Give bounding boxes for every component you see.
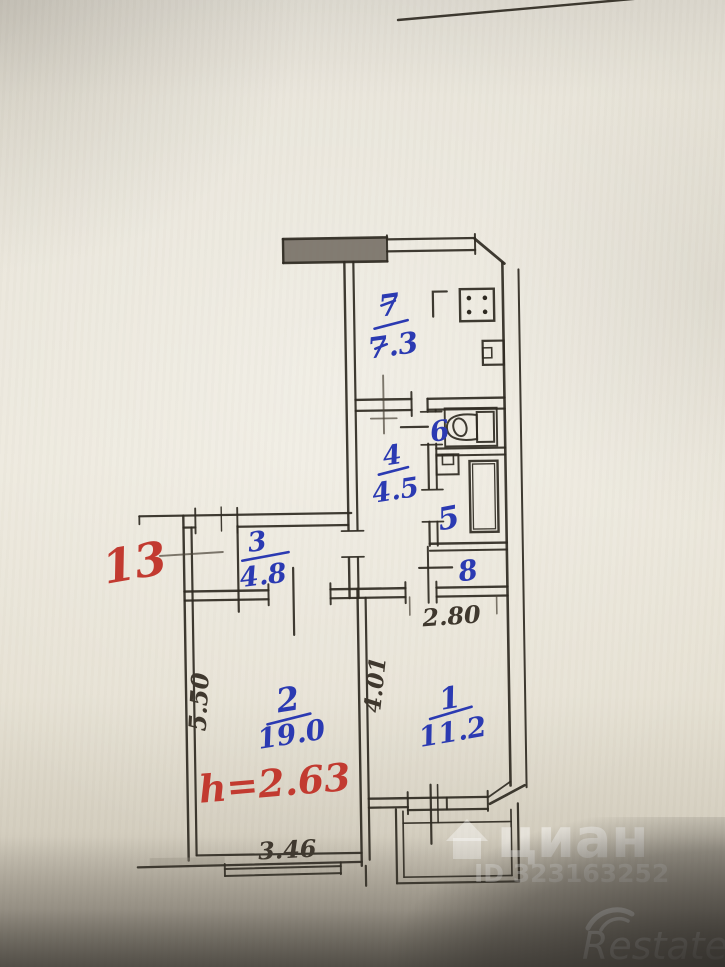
kitchen-walls (283, 233, 527, 791)
kitchen-room-label: 7 7.3 (360, 285, 420, 365)
corridor-area: 4.5 (370, 472, 421, 510)
hallway-room-label: 3 4.8 (234, 523, 293, 594)
closet-label-leader (419, 567, 452, 568)
corridor-number: 4 (380, 439, 403, 473)
bedroom-width-dimension: 2.80 (410, 596, 498, 633)
cian-id-label: ID 323163252 (474, 859, 669, 888)
dimension-bedroom-depth: 4.01 (359, 655, 392, 714)
chamfered-corner (475, 239, 504, 264)
chamfered-corner (490, 785, 525, 804)
toilet-icon (445, 408, 498, 447)
restate-logo-text: Restate (582, 924, 725, 967)
paper-edge-line (398, 0, 655, 20)
corridor-hall-door-jambs (342, 531, 364, 557)
photo-of-floor-plan: 7 7.3 (0, 0, 725, 967)
corridor-room-label: 4 4.5 (365, 437, 422, 509)
hallway-area: 4.8 (238, 558, 289, 594)
living-walls (133, 589, 370, 890)
stove-icon (460, 289, 494, 322)
cian-house-icon (446, 819, 488, 859)
bathtub-icon (469, 461, 498, 532)
hallway-number: 3 (246, 526, 268, 559)
floor-plan-svg: 7 7.3 (0, 0, 725, 967)
kitchen-sink-icon (483, 341, 504, 365)
dimension-living-depth: 5.50 (183, 672, 215, 732)
ceiling-height-label: h=2.63 (197, 754, 352, 812)
dimension-bedroom-width: 2.80 (420, 599, 482, 632)
apartment-number-label: 13 (98, 530, 170, 594)
restate-logo: Restate (582, 910, 725, 967)
plan: 7 7.3 (94, 233, 528, 890)
washbasin-icon (436, 454, 458, 474)
bathroom-walls (422, 489, 507, 551)
closet-wall (428, 547, 429, 603)
closet-room-label: 8 (455, 553, 480, 589)
counter-corner-icon (433, 291, 447, 316)
toilet-room-label: 6 (427, 413, 451, 449)
living-number: 2 (273, 678, 303, 720)
bathroom-room-label: 5 (435, 499, 463, 538)
balcony-window (408, 791, 488, 814)
balcony-door-leaf (431, 785, 439, 844)
bedroom-area: 11.2 (416, 710, 489, 754)
kitchen-area: 7.3 (366, 325, 421, 366)
cian-watermark: циан ID 323163252 (446, 807, 669, 888)
dimension-living-width: 3.46 (257, 834, 317, 866)
kitchen-window (387, 234, 475, 261)
bedroom-room-label: 1 11.2 (410, 676, 489, 754)
living-room-label: 2 19.0 (249, 675, 328, 756)
living-area: 19.0 (255, 713, 328, 756)
living-door-leaf (293, 568, 294, 635)
shaded-exterior-wall (283, 237, 387, 263)
kitchen-door-mark (370, 375, 397, 433)
